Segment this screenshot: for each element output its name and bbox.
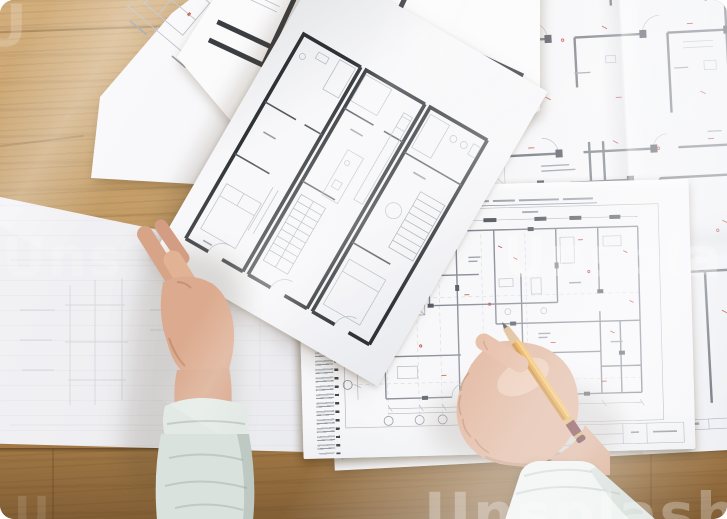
left-arm — [125, 218, 260, 519]
index-fingertip — [470, 330, 540, 390]
photo-architect-desk: U Uns Unspla Unsplash+Uns U — [0, 0, 727, 519]
sleeve-cuff — [163, 398, 248, 440]
palm — [161, 276, 234, 374]
sleeve — [156, 434, 255, 519]
right-sleeve-cuff — [480, 450, 670, 519]
